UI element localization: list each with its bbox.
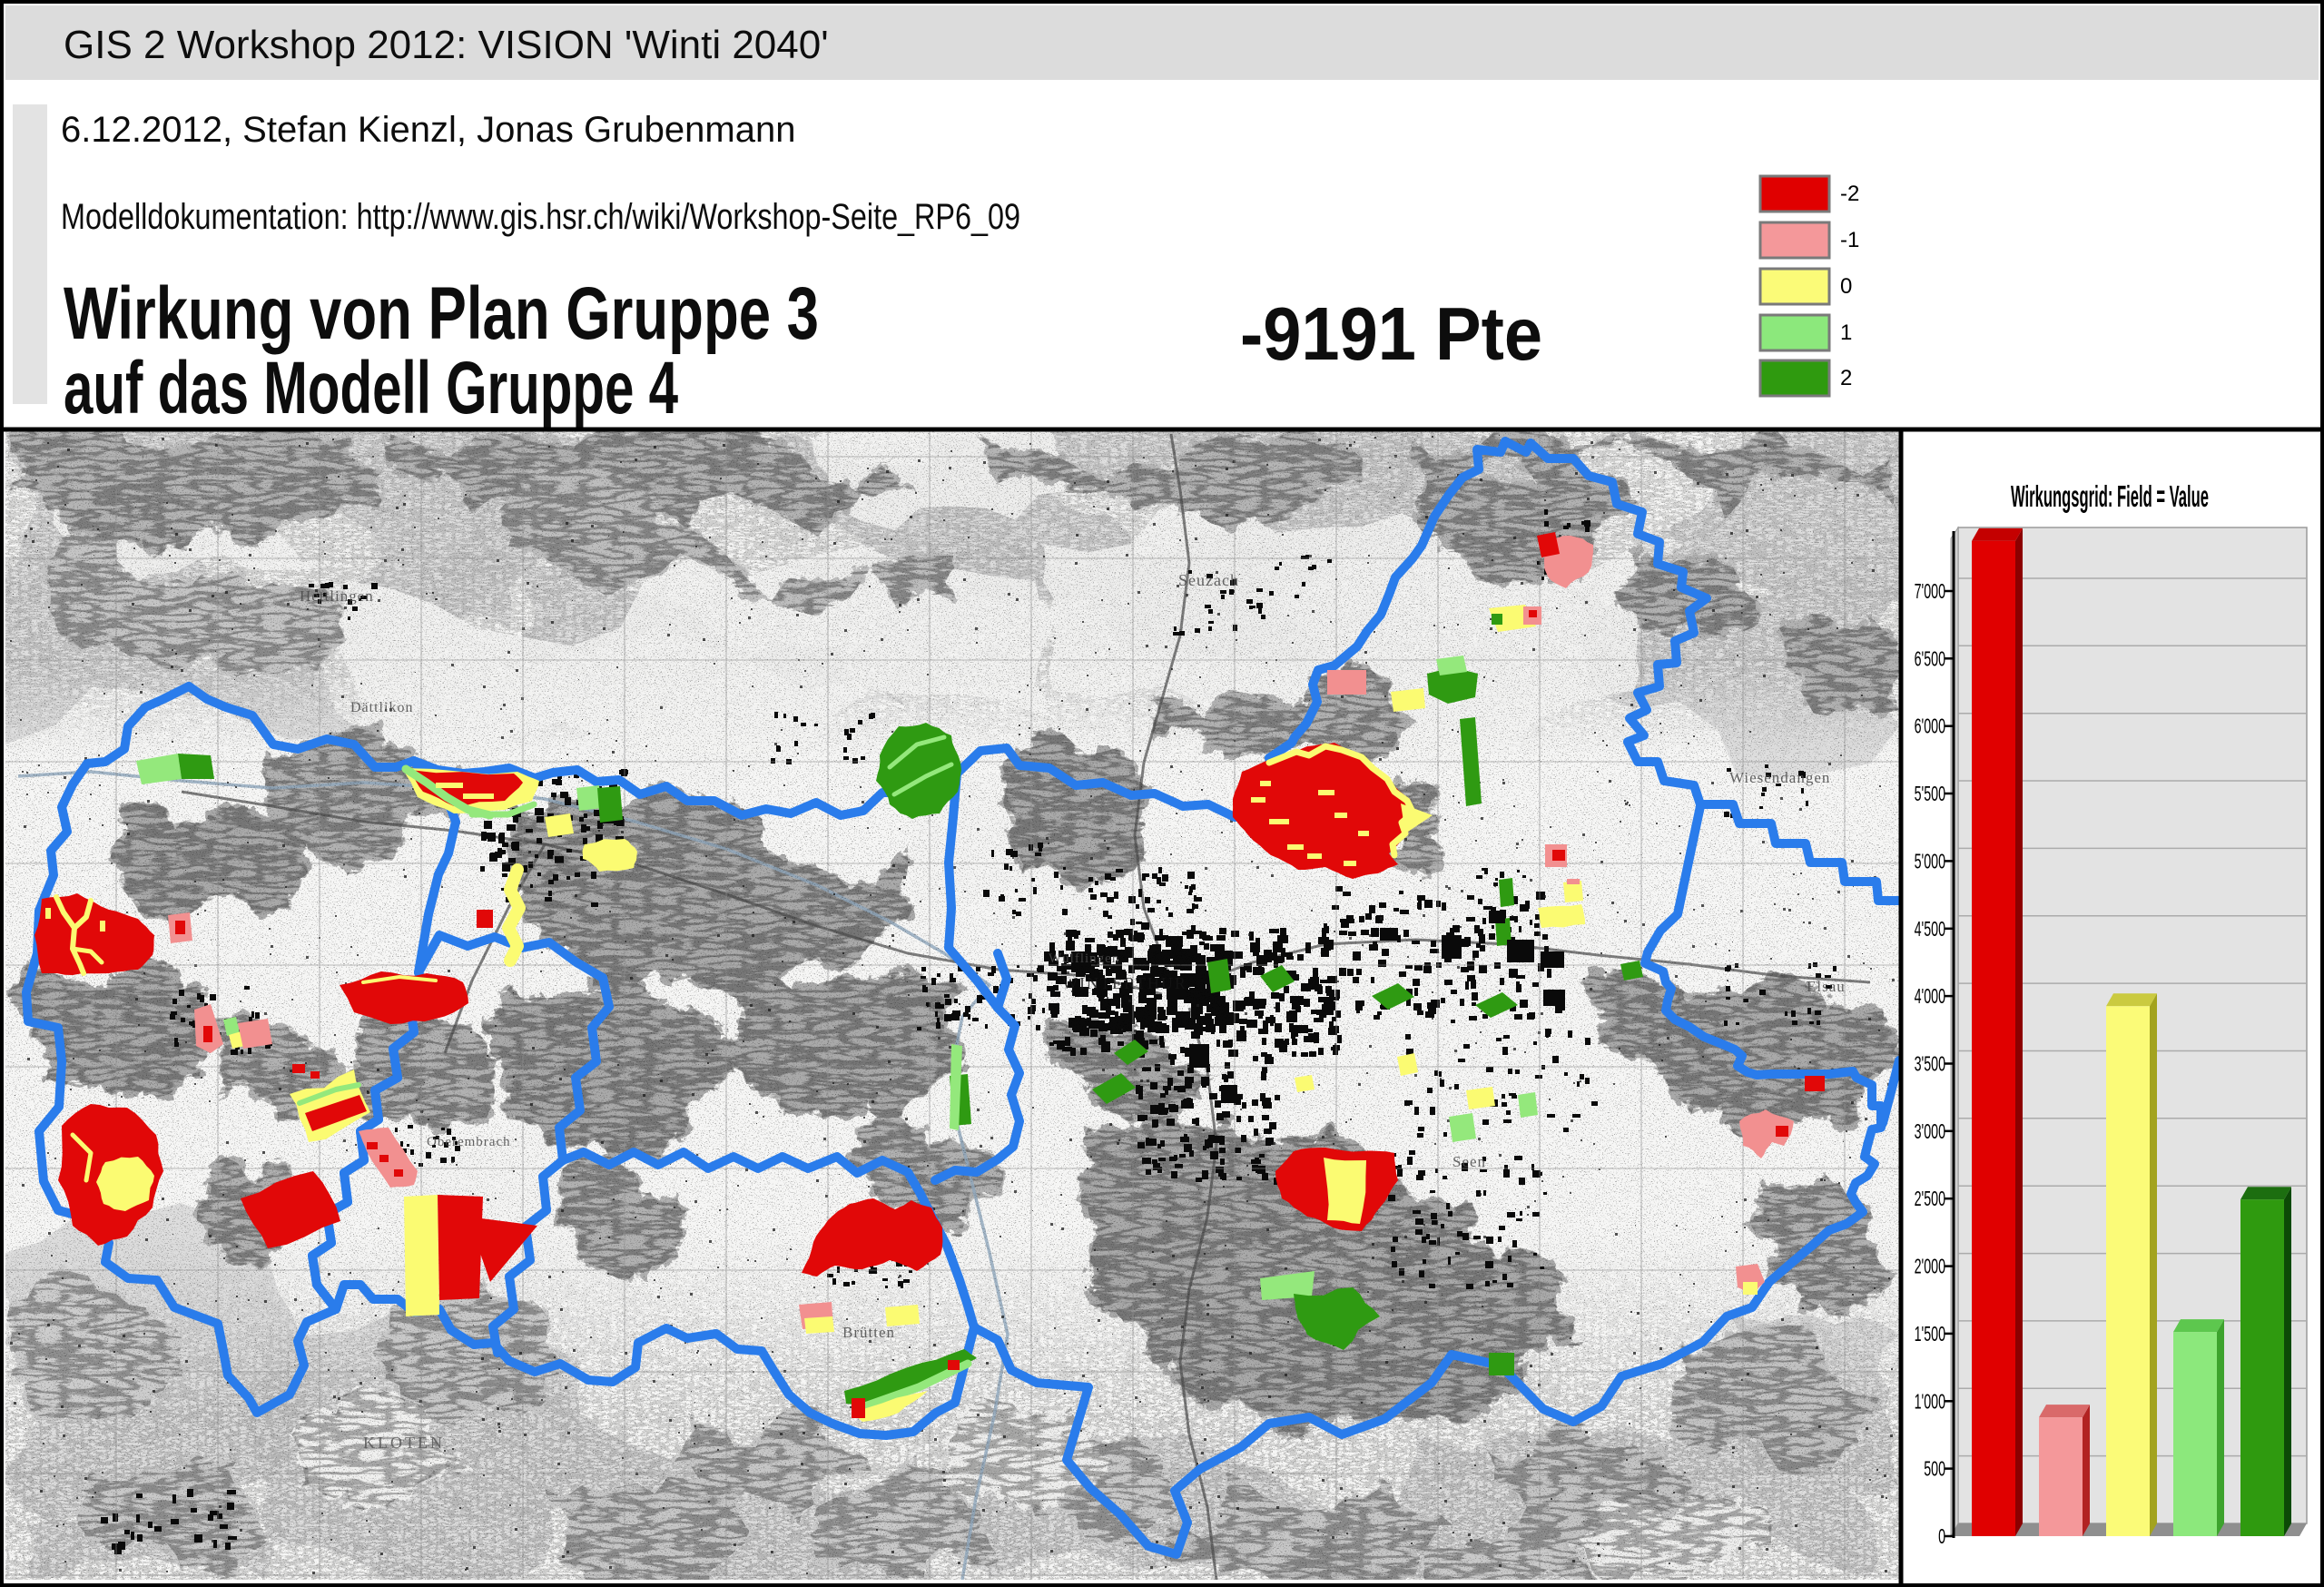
svg-text:Wülflingen: Wülflingen [1049, 951, 1119, 966]
svg-text:7'000: 7'000 [1915, 581, 1945, 604]
svg-text:2'500: 2'500 [1915, 1188, 1945, 1211]
svg-text:Wirkung von Plan Gruppe 3: Wirkung von Plan Gruppe 3 [64, 272, 819, 355]
svg-text:Oberembrach: Oberembrach [427, 1135, 511, 1149]
svg-text:0: 0 [1938, 1526, 1945, 1549]
svg-text:WINTERTHUR: WINTERTHUR [1062, 974, 1187, 992]
svg-text:2: 2 [1840, 366, 1852, 390]
svg-text:Seuzach: Seuzach [1178, 571, 1239, 589]
svg-text:-1: -1 [1840, 228, 1859, 252]
svg-text:Hettlingen: Hettlingen [300, 587, 374, 605]
svg-text:4'000: 4'000 [1915, 986, 1945, 1009]
svg-text:Seen: Seen [1452, 1153, 1486, 1170]
svg-text:5'000: 5'000 [1915, 851, 1945, 873]
svg-text:KLOTEN: KLOTEN [363, 1434, 445, 1452]
svg-text:2'000: 2'000 [1915, 1256, 1945, 1278]
svg-text:0: 0 [1840, 274, 1852, 299]
svg-text:6.12.2012, Stefan Kienzl, Jona: 6.12.2012, Stefan Kienzl, Jonas Grubenma… [61, 110, 795, 150]
svg-text:3'500: 3'500 [1915, 1053, 1945, 1076]
svg-text:Dättlikon: Dättlikon [350, 700, 413, 715]
svg-text:Brütten: Brütten [842, 1324, 895, 1341]
svg-text:Elsau: Elsau [1807, 978, 1846, 995]
svg-text:3'000: 3'000 [1915, 1121, 1945, 1144]
svg-text:5'500: 5'500 [1915, 784, 1945, 806]
svg-text:Wirkungsgrid: Field = Value: Wirkungsgrid: Field = Value [2011, 479, 2209, 513]
svg-text:Modelldokumentation: http://ww: Modelldokumentation: http://www.gis.hsr.… [61, 197, 1020, 237]
svg-text:6'500: 6'500 [1915, 648, 1945, 671]
svg-text:GIS 2 Workshop 2012: VISION 'W: GIS 2 Workshop 2012: VISION 'Winti 2040' [64, 23, 829, 67]
svg-text:4'500: 4'500 [1915, 919, 1945, 941]
svg-text:-2: -2 [1840, 182, 1859, 206]
svg-text:1: 1 [1840, 320, 1852, 345]
svg-text:auf das Modell Gruppe 4: auf das Modell Gruppe 4 [64, 347, 678, 429]
svg-text:1'000: 1'000 [1915, 1391, 1945, 1414]
svg-text:6'000: 6'000 [1915, 715, 1945, 738]
svg-text:1'500: 1'500 [1915, 1324, 1945, 1346]
svg-text:Wiesendangen: Wiesendangen [1729, 769, 1830, 786]
svg-text:-9191 Pte: -9191 Pte [1240, 291, 1542, 376]
svg-text:500: 500 [1924, 1458, 1945, 1481]
